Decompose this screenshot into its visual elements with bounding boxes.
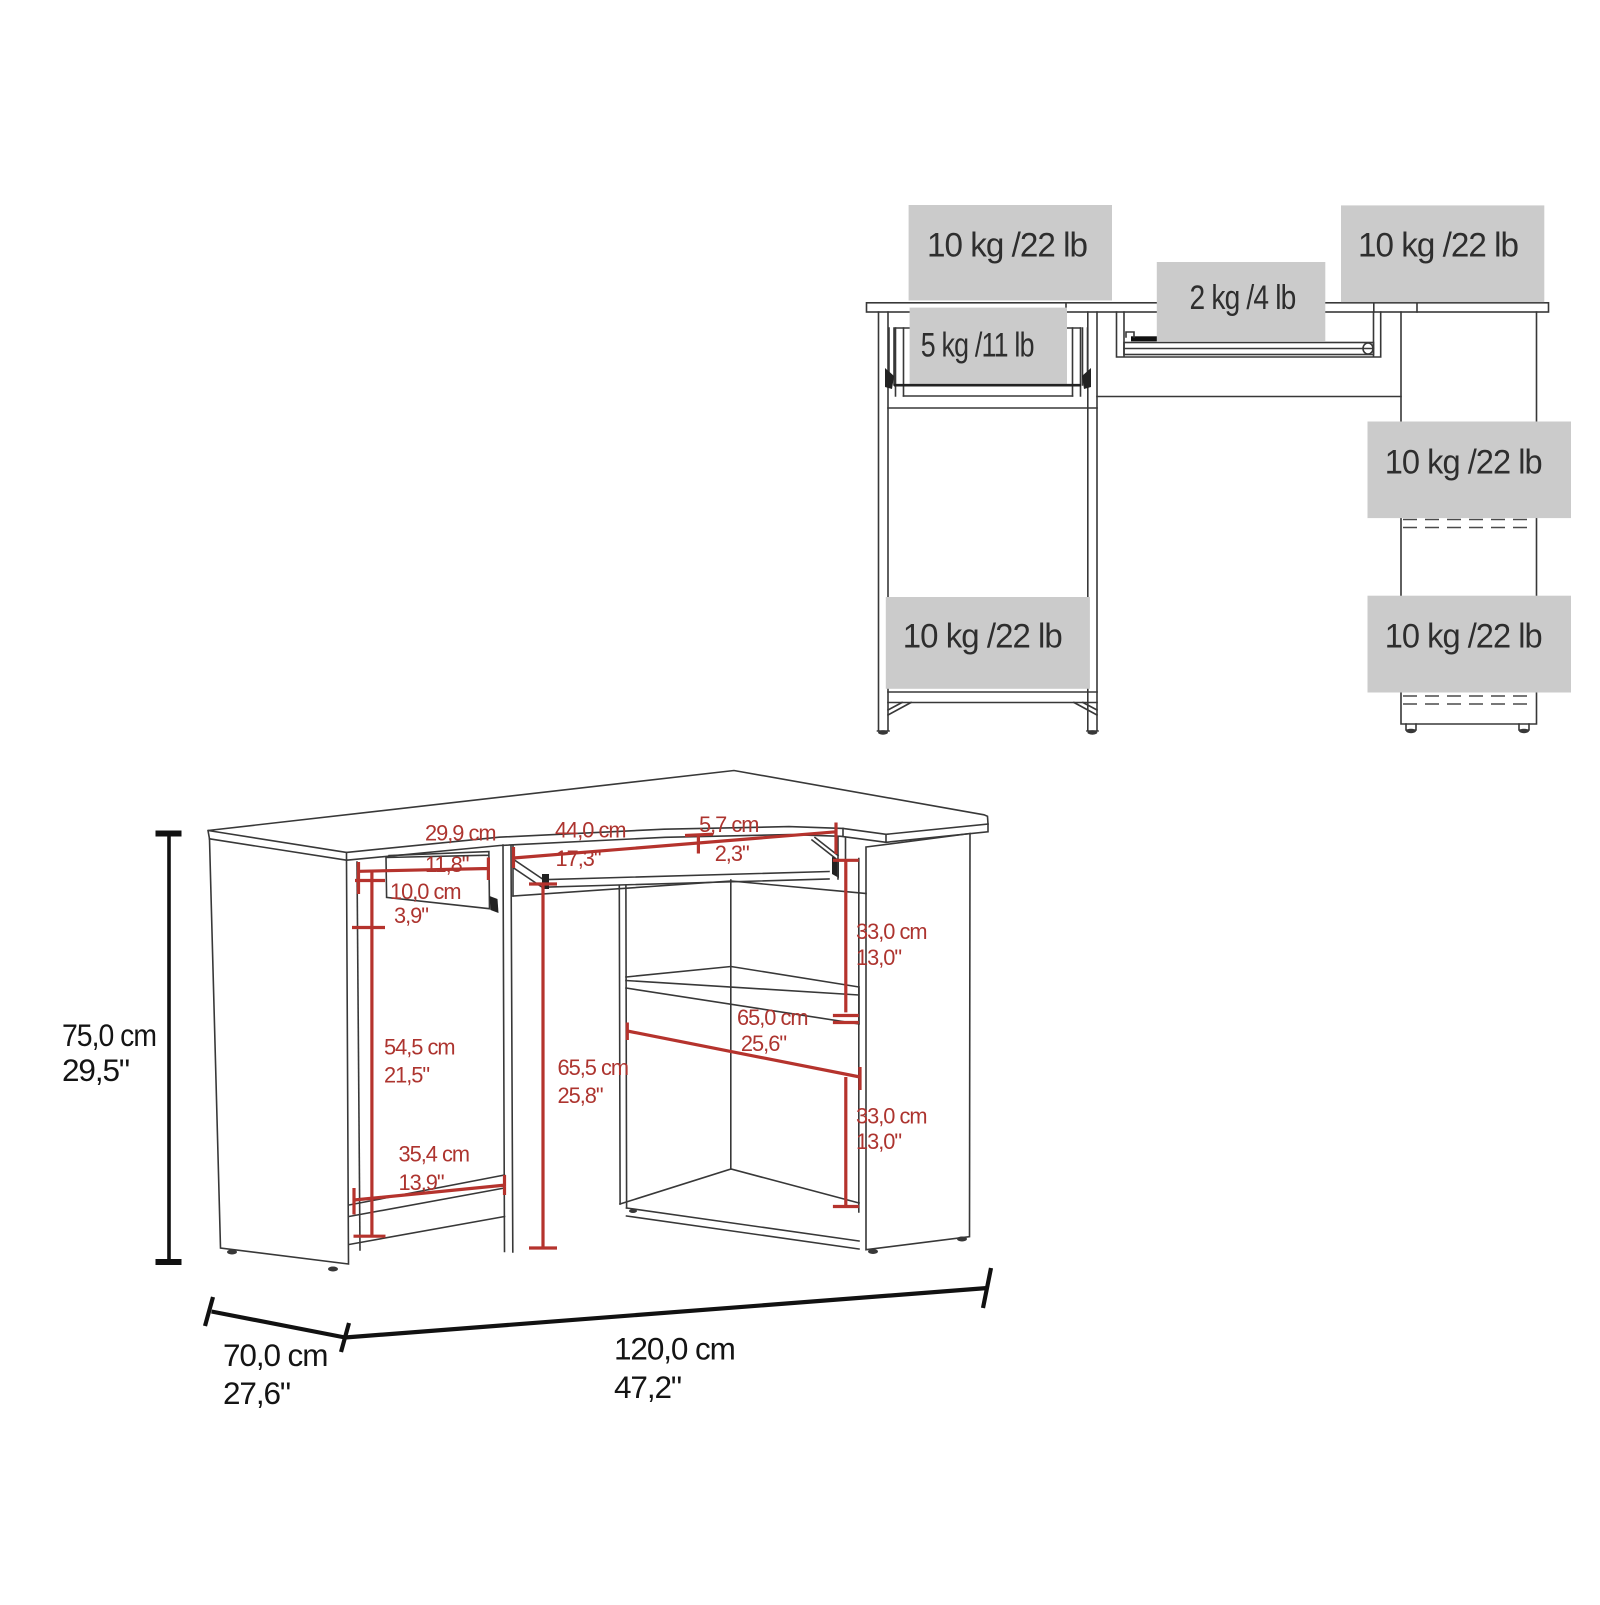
svg-text:44,0 cm: 44,0 cm (555, 818, 626, 843)
svg-text:25,8": 25,8" (558, 1083, 603, 1108)
svg-text:10 kg /22 lb: 10 kg /22 lb (903, 618, 1062, 656)
svg-text:2 kg /4 lb: 2 kg /4 lb (1190, 279, 1296, 317)
svg-text:120,0 cm: 120,0 cm (614, 1331, 735, 1367)
svg-text:70,0 cm: 70,0 cm (223, 1337, 327, 1373)
svg-text:65,5 cm: 65,5 cm (558, 1055, 629, 1080)
svg-text:65,0 cm: 65,0 cm (737, 1005, 808, 1030)
svg-text:10 kg /22 lb: 10 kg /22 lb (1385, 618, 1542, 656)
svg-text:13,0": 13,0" (856, 1129, 901, 1154)
svg-text:10 kg /22 lb: 10 kg /22 lb (927, 227, 1087, 265)
svg-text:2,3": 2,3" (715, 841, 749, 866)
svg-text:5 kg /11 lb: 5 kg /11 lb (921, 327, 1034, 365)
svg-text:35,4 cm: 35,4 cm (399, 1142, 470, 1167)
svg-text:33,0 cm: 33,0 cm (856, 1104, 927, 1129)
svg-text:17,3": 17,3" (556, 846, 601, 871)
svg-text:13,9": 13,9" (399, 1170, 444, 1195)
svg-text:29,9 cm: 29,9 cm (425, 821, 496, 846)
svg-text:54,5 cm: 54,5 cm (384, 1035, 455, 1060)
svg-text:5,7 cm: 5,7 cm (699, 812, 758, 837)
svg-text:29,5": 29,5" (62, 1052, 129, 1088)
svg-text:10,0 cm: 10,0 cm (390, 879, 461, 904)
svg-text:10 kg /22 lb: 10 kg /22 lb (1385, 444, 1542, 482)
svg-text:33,0 cm: 33,0 cm (856, 919, 927, 944)
svg-text:25,6": 25,6" (741, 1031, 786, 1056)
svg-text:11,8": 11,8" (425, 852, 469, 877)
svg-text:10 kg /22 lb: 10 kg /22 lb (1358, 226, 1518, 264)
svg-text:27,6": 27,6" (223, 1375, 290, 1411)
svg-text:3,9": 3,9" (394, 903, 428, 928)
svg-text:13,0": 13,0" (856, 945, 901, 970)
svg-text:75,0 cm: 75,0 cm (62, 1017, 156, 1053)
svg-text:21,5": 21,5" (384, 1063, 429, 1088)
svg-text:47,2": 47,2" (614, 1369, 681, 1405)
